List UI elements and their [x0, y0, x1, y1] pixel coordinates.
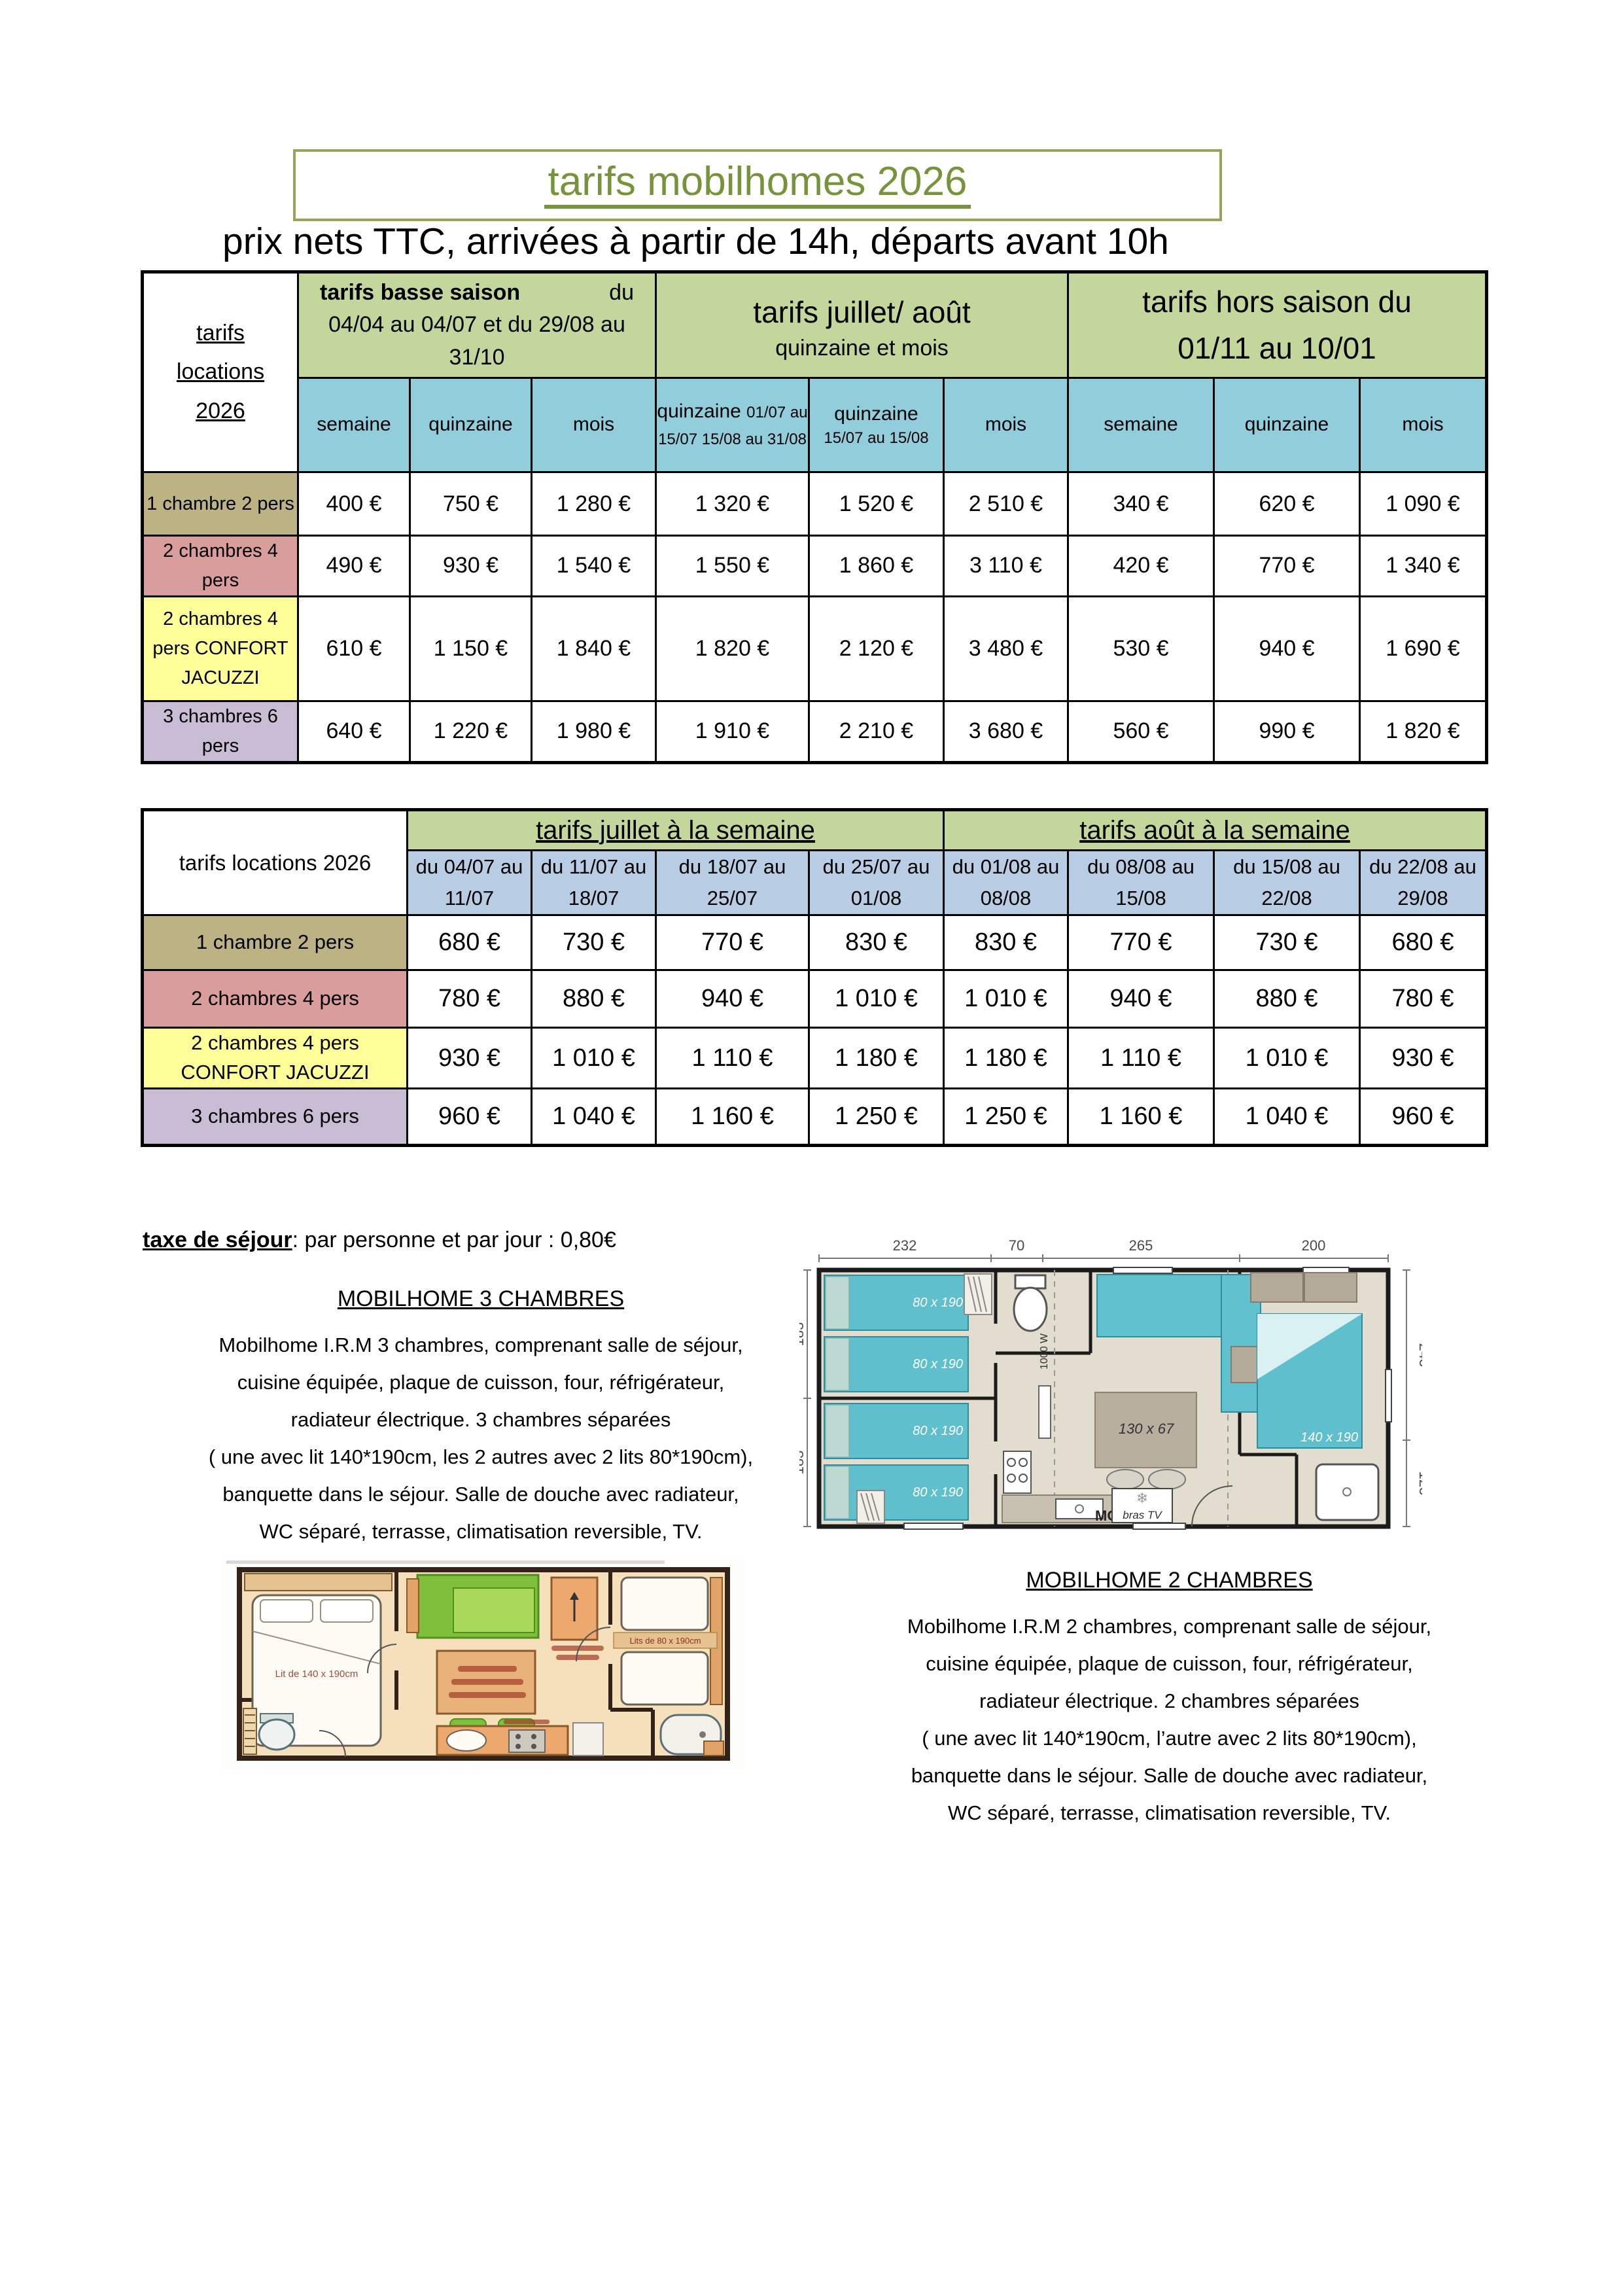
toilet — [1014, 1275, 1047, 1331]
table-row: 2 chambres 4 pers 490 € 930 € 1 540 € 1 … — [143, 536, 1487, 597]
dim-label: 243 — [1416, 1343, 1422, 1368]
mobilhome3-description: MOBILHOME 3 CHAMBRES Mobilhome I.R.M 3 c… — [147, 1286, 814, 1550]
group1-dates: 04/04 au 04/07 et du 29/08 au 31/10 — [308, 309, 646, 374]
price-cell: 1 040 € — [532, 1088, 656, 1145]
price-cell: 420 € — [1068, 536, 1214, 597]
col-header-quinzaine-0107: quinzaine 01/07 au 15/07 15/08 au 31/08 — [656, 378, 809, 472]
description-line: banquette dans le séjour. Salle de douch… — [847, 1757, 1492, 1794]
price-cell: 750 € — [410, 472, 532, 536]
description-line: ( une avec lit 140*190cm, les 2 autres a… — [147, 1438, 814, 1475]
price-cell: 990 € — [1214, 701, 1360, 762]
mobilhome3-heading: MOBILHOME 3 CHAMBRES — [147, 1286, 814, 1312]
shelf-hatch — [243, 1708, 256, 1754]
table-row: 2 chambres 4 pers CONFORT JACUZZI 610 € … — [143, 596, 1487, 701]
row-label-2ch4p: 2 chambres 4 pers — [143, 536, 298, 597]
price-cell: 3 480 € — [944, 596, 1068, 701]
price-cell: 530 € — [1068, 596, 1214, 701]
price-cell: 1 090 € — [1360, 472, 1487, 536]
corner-line: tarifs — [144, 314, 297, 353]
dim-label: 123 — [1416, 1472, 1422, 1496]
row-label-2ch4p-confort: 2 chambres 4 pers CONFORT JACUZZI — [143, 596, 298, 701]
price-cell: 1 550 € — [656, 536, 809, 597]
price-cell: 770 € — [1214, 536, 1360, 597]
price-cell: 1 220 € — [410, 701, 532, 762]
price-cell: 640 € — [298, 701, 410, 762]
table-row: tarifs locations 2026 tarifs juillet à l… — [143, 810, 1487, 851]
mobilhome2-heading: MOBILHOME 2 CHAMBRES — [847, 1568, 1492, 1593]
col-header-semaine: semaine — [1068, 378, 1214, 472]
weekly-pricing-table: tarifs locations 2026 tarifs juillet à l… — [141, 808, 1488, 1147]
table-row: 2 chambres 4 pers 780 € 880 € 940 € 1 01… — [143, 970, 1487, 1028]
price-cell: 930 € — [410, 536, 532, 597]
col-header-semaine: semaine — [298, 378, 410, 472]
table-row: tarifs locations 2026 tarifs basse saiso… — [143, 272, 1487, 378]
col-header-quinzaine-1507: quinzaine15/07 au 15/08 — [809, 378, 944, 472]
price-cell: 1 160 € — [656, 1088, 809, 1145]
dim-label: 183 — [799, 1322, 807, 1347]
price-cell: 1 320 € — [656, 472, 809, 536]
bed-size-label: Lit de 140 x 190cm — [275, 1669, 358, 1680]
price-cell: 1 910 € — [656, 701, 809, 762]
description-line: cuisine équipée, plaque de cuisson, four… — [147, 1364, 814, 1401]
price-cell: 680 € — [1360, 915, 1487, 970]
stove — [509, 1730, 545, 1752]
price-cell: 680 € — [408, 915, 532, 970]
bed-size-label: 80 x 190 — [913, 1296, 963, 1310]
price-cell: 940 € — [656, 970, 809, 1028]
sofa-armrest — [1231, 1347, 1261, 1383]
price-cell: 770 € — [656, 915, 809, 970]
description-line: radiateur électrique. 3 chambres séparée… — [147, 1401, 814, 1438]
row-label-3ch6p: 3 chambres 6 pers — [143, 1088, 408, 1145]
price-cell: 2 120 € — [809, 596, 944, 701]
price-cell: 1 540 € — [532, 536, 656, 597]
group2-subtitle: quinzaine et mois — [657, 336, 1067, 361]
col-header-week: du 11/07 au 18/07 — [532, 851, 656, 915]
dim-label: 265 — [1129, 1239, 1153, 1254]
radiator-watt-label: 1000 W — [1039, 1333, 1050, 1369]
price-cell: 1 860 € — [809, 536, 944, 597]
dim-label: 70 — [1009, 1239, 1024, 1254]
price-cell: 1 040 € — [1214, 1088, 1360, 1145]
price-cell: 3 680 € — [944, 701, 1068, 762]
season-pricing-table: tarifs locations 2026 tarifs basse saiso… — [141, 270, 1488, 764]
price-cell: 2 210 € — [809, 701, 944, 762]
price-cell: 1 160 € — [1068, 1088, 1214, 1145]
floorplan-2-bedrooms: Lit de 140 x 190cm Lits de 80 x 1 — [221, 1559, 746, 1770]
price-cell: 610 € — [298, 596, 410, 701]
group-header-basse-saison: tarifs basse saisondu 04/04 au 04/07 et … — [298, 272, 656, 378]
price-cell: 620 € — [1214, 472, 1360, 536]
price-cell: 880 € — [532, 970, 656, 1028]
price-cell: 1 250 € — [809, 1088, 944, 1145]
price-cell: 880 € — [1214, 970, 1360, 1028]
table-row: 3 chambres 6 pers 960 € 1 040 € 1 160 € … — [143, 1088, 1487, 1145]
fridge — [551, 1578, 604, 1660]
shower — [661, 1715, 724, 1756]
col-header-week: du 22/08 au 29/08 — [1360, 851, 1487, 915]
radiator — [1039, 1386, 1051, 1438]
group1-title: tarifs basse saison — [320, 277, 520, 309]
price-cell: 940 € — [1214, 596, 1360, 701]
price-cell: 730 € — [1214, 915, 1360, 970]
dim-label: 232 — [893, 1239, 917, 1254]
mobilhome2-description: MOBILHOME 2 CHAMBRES Mobilhome I.R.M 2 c… — [847, 1568, 1492, 1831]
price-cell: 1 010 € — [532, 1028, 656, 1089]
price-cell: 1 520 € — [809, 472, 944, 536]
price-cell: 1 280 € — [532, 472, 656, 536]
description-line: radiateur électrique. 2 chambres séparée… — [847, 1682, 1492, 1720]
price-cell: 490 € — [298, 536, 410, 597]
price-cell: 730 € — [532, 915, 656, 970]
sink — [447, 1730, 486, 1751]
group2-title: tarifs juillet/ août — [657, 289, 1067, 336]
price-cell: 940 € — [1068, 970, 1214, 1028]
col-header-week: du 08/08 au 15/08 — [1068, 851, 1214, 915]
price-cell: 1 180 € — [809, 1028, 944, 1089]
page: { "header": { "title": "tarifs mobilhome… — [0, 0, 1623, 2296]
description-line: ( une avec lit 140*190cm, l’autre avec 2… — [847, 1720, 1492, 1757]
price-cell: 2 510 € — [944, 472, 1068, 536]
price-cell: 930 € — [1360, 1028, 1487, 1089]
col-header-quinzaine: quinzaine — [410, 378, 532, 472]
price-cell: 1 820 € — [656, 596, 809, 701]
master-bedroom — [1251, 1273, 1362, 1448]
snowflake-icon: ❄ — [1136, 1490, 1148, 1506]
tax-note-text: : par personne et par jour : 0,80€ — [292, 1227, 616, 1252]
group-header-hors-saison: tarifs hors saison du 01/11 au 10/01 — [1068, 272, 1487, 378]
group1-du: du — [609, 277, 634, 309]
price-cell: 400 € — [298, 472, 410, 536]
group-header-juillet-semaine: tarifs juillet à la semaine — [408, 810, 944, 851]
shower — [1316, 1464, 1378, 1520]
price-cell: 1 250 € — [944, 1088, 1068, 1145]
bed-size-label: Lits de 80 x 190cm — [629, 1636, 701, 1646]
cabinet — [573, 1723, 603, 1756]
col-header-mois: mois — [532, 378, 656, 472]
table-size-label: 130 x 67 — [1119, 1421, 1174, 1437]
price-cell: 930 € — [408, 1028, 532, 1089]
group-header-juillet-aout: tarifs juillet/ août quinzaine et mois — [656, 272, 1068, 378]
col-header-mois: mois — [1360, 378, 1487, 472]
col-header-week: du 25/07 au 01/08 — [809, 851, 944, 915]
col-header-quinzaine: quinzaine — [1214, 378, 1360, 472]
col-detail: 15/07 au 15/08 — [810, 428, 943, 449]
corner-line: 2026 — [144, 392, 297, 431]
col-header-week: du 04/07 au 11/07 — [408, 851, 532, 915]
description-line: Mobilhome I.R.M 2 chambres, comprenant s… — [847, 1608, 1492, 1645]
table2-corner-label: tarifs locations 2026 — [143, 810, 408, 915]
description-line: cuisine équipée, plaque de cuisson, four… — [847, 1645, 1492, 1682]
page-title: tarifs mobilhomes 2026 — [544, 162, 971, 209]
price-cell: 960 € — [408, 1088, 532, 1145]
price-cell: 830 € — [944, 915, 1068, 970]
price-cell: 1 340 € — [1360, 536, 1487, 597]
price-cell: 340 € — [1068, 472, 1214, 536]
sofa — [407, 1575, 538, 1638]
price-cell: 780 € — [1360, 970, 1487, 1028]
col-main: quinzaine — [657, 400, 741, 422]
price-cell: 3 110 € — [944, 536, 1068, 597]
table-row: 3 chambres 6 pers 640 € 1 220 € 1 980 € … — [143, 701, 1487, 762]
row-label-2ch4p: 2 chambres 4 pers — [143, 970, 408, 1028]
bed-size-label: 80 x 190 — [913, 1357, 963, 1371]
price-cell: 1 010 € — [944, 970, 1068, 1028]
col-main: quinzaine — [834, 403, 918, 425]
table-row: 2 chambres 4 pers CONFORT JACUZZI 930 € … — [143, 1028, 1487, 1089]
title-box: tarifs mobilhomes 2026 — [293, 149, 1222, 221]
price-cell: 1 980 € — [532, 701, 656, 762]
row-label-1ch2p: 1 chambre 2 pers — [143, 472, 298, 536]
price-cell: 830 € — [809, 915, 944, 970]
group-header-aout-semaine: tarifs août à la semaine — [944, 810, 1487, 851]
group3-line1: tarifs hors saison du — [1069, 279, 1485, 325]
scan-edge — [226, 1561, 665, 1564]
group3-line2: 01/11 au 10/01 — [1069, 325, 1485, 372]
price-cell: 1 820 € — [1360, 701, 1487, 762]
price-cell: 1 150 € — [410, 596, 532, 701]
wardrobe — [245, 1574, 392, 1591]
corner-line: locations — [144, 353, 297, 392]
row-label-3ch6p: 3 chambres 6 pers — [143, 701, 298, 762]
page-subtitle: prix nets TTC, arrivées à partir de 14h,… — [222, 220, 1169, 263]
floorplan-3-bedrooms: 232 70 265 200 183 183 243 123 — [799, 1239, 1422, 1545]
price-cell: 1 690 € — [1360, 596, 1487, 701]
price-cell: 960 € — [1360, 1088, 1487, 1145]
price-cell: 1 010 € — [809, 970, 944, 1028]
table-row: 1 chambre 2 pers 680 € 730 € 770 € 830 €… — [143, 915, 1487, 970]
description-line: WC séparé, terrasse, climatisation rever… — [147, 1513, 814, 1550]
price-cell: 780 € — [408, 970, 532, 1028]
stove — [1003, 1451, 1031, 1493]
price-cell: 1 180 € — [944, 1028, 1068, 1089]
tax-note-title: taxe de séjour — [143, 1227, 292, 1252]
description-line: Mobilhome I.R.M 3 chambres, comprenant s… — [147, 1326, 814, 1364]
dimension-lines-top — [819, 1254, 1388, 1262]
dim-label: 200 — [1302, 1239, 1326, 1254]
table-row: semaine quinzaine mois quinzaine 01/07 a… — [143, 378, 1487, 472]
row-label-2ch4p-confort: 2 chambres 4 pers CONFORT JACUZZI — [143, 1028, 408, 1089]
table1-corner-label: tarifs locations 2026 — [143, 272, 298, 472]
description-line: banquette dans le séjour. Salle de douch… — [147, 1475, 814, 1513]
price-cell: 1 110 € — [1068, 1028, 1214, 1089]
bed-size-label: 80 x 190 — [913, 1424, 963, 1438]
description-line: WC séparé, terrasse, climatisation rever… — [847, 1794, 1492, 1831]
dim-label: 183 — [799, 1451, 807, 1475]
price-cell: 770 € — [1068, 915, 1214, 970]
price-cell: 1 840 € — [532, 596, 656, 701]
price-cell: 1 110 € — [656, 1028, 809, 1089]
price-cell: 560 € — [1068, 701, 1214, 762]
tax-note: taxe de séjour: par personne et par jour… — [143, 1227, 616, 1253]
col-header-week: du 15/08 au 22/08 — [1214, 851, 1360, 915]
row-label-1ch2p: 1 chambre 2 pers — [143, 915, 408, 970]
table-row: 1 chambre 2 pers 400 € 750 € 1 280 € 1 3… — [143, 472, 1487, 536]
dining-table — [437, 1651, 535, 1714]
col-header-mois: mois — [944, 378, 1068, 472]
toilet — [259, 1714, 294, 1750]
tv-label: bras TV — [1123, 1509, 1162, 1521]
price-cell: 1 010 € — [1214, 1028, 1360, 1089]
bed-size-label: 80 x 190 — [913, 1485, 963, 1500]
col-header-week: du 01/08 au 08/08 — [944, 851, 1068, 915]
bed-size-label: 140 x 190 — [1300, 1430, 1358, 1445]
col-header-week: du 18/07 au 25/07 — [656, 851, 809, 915]
